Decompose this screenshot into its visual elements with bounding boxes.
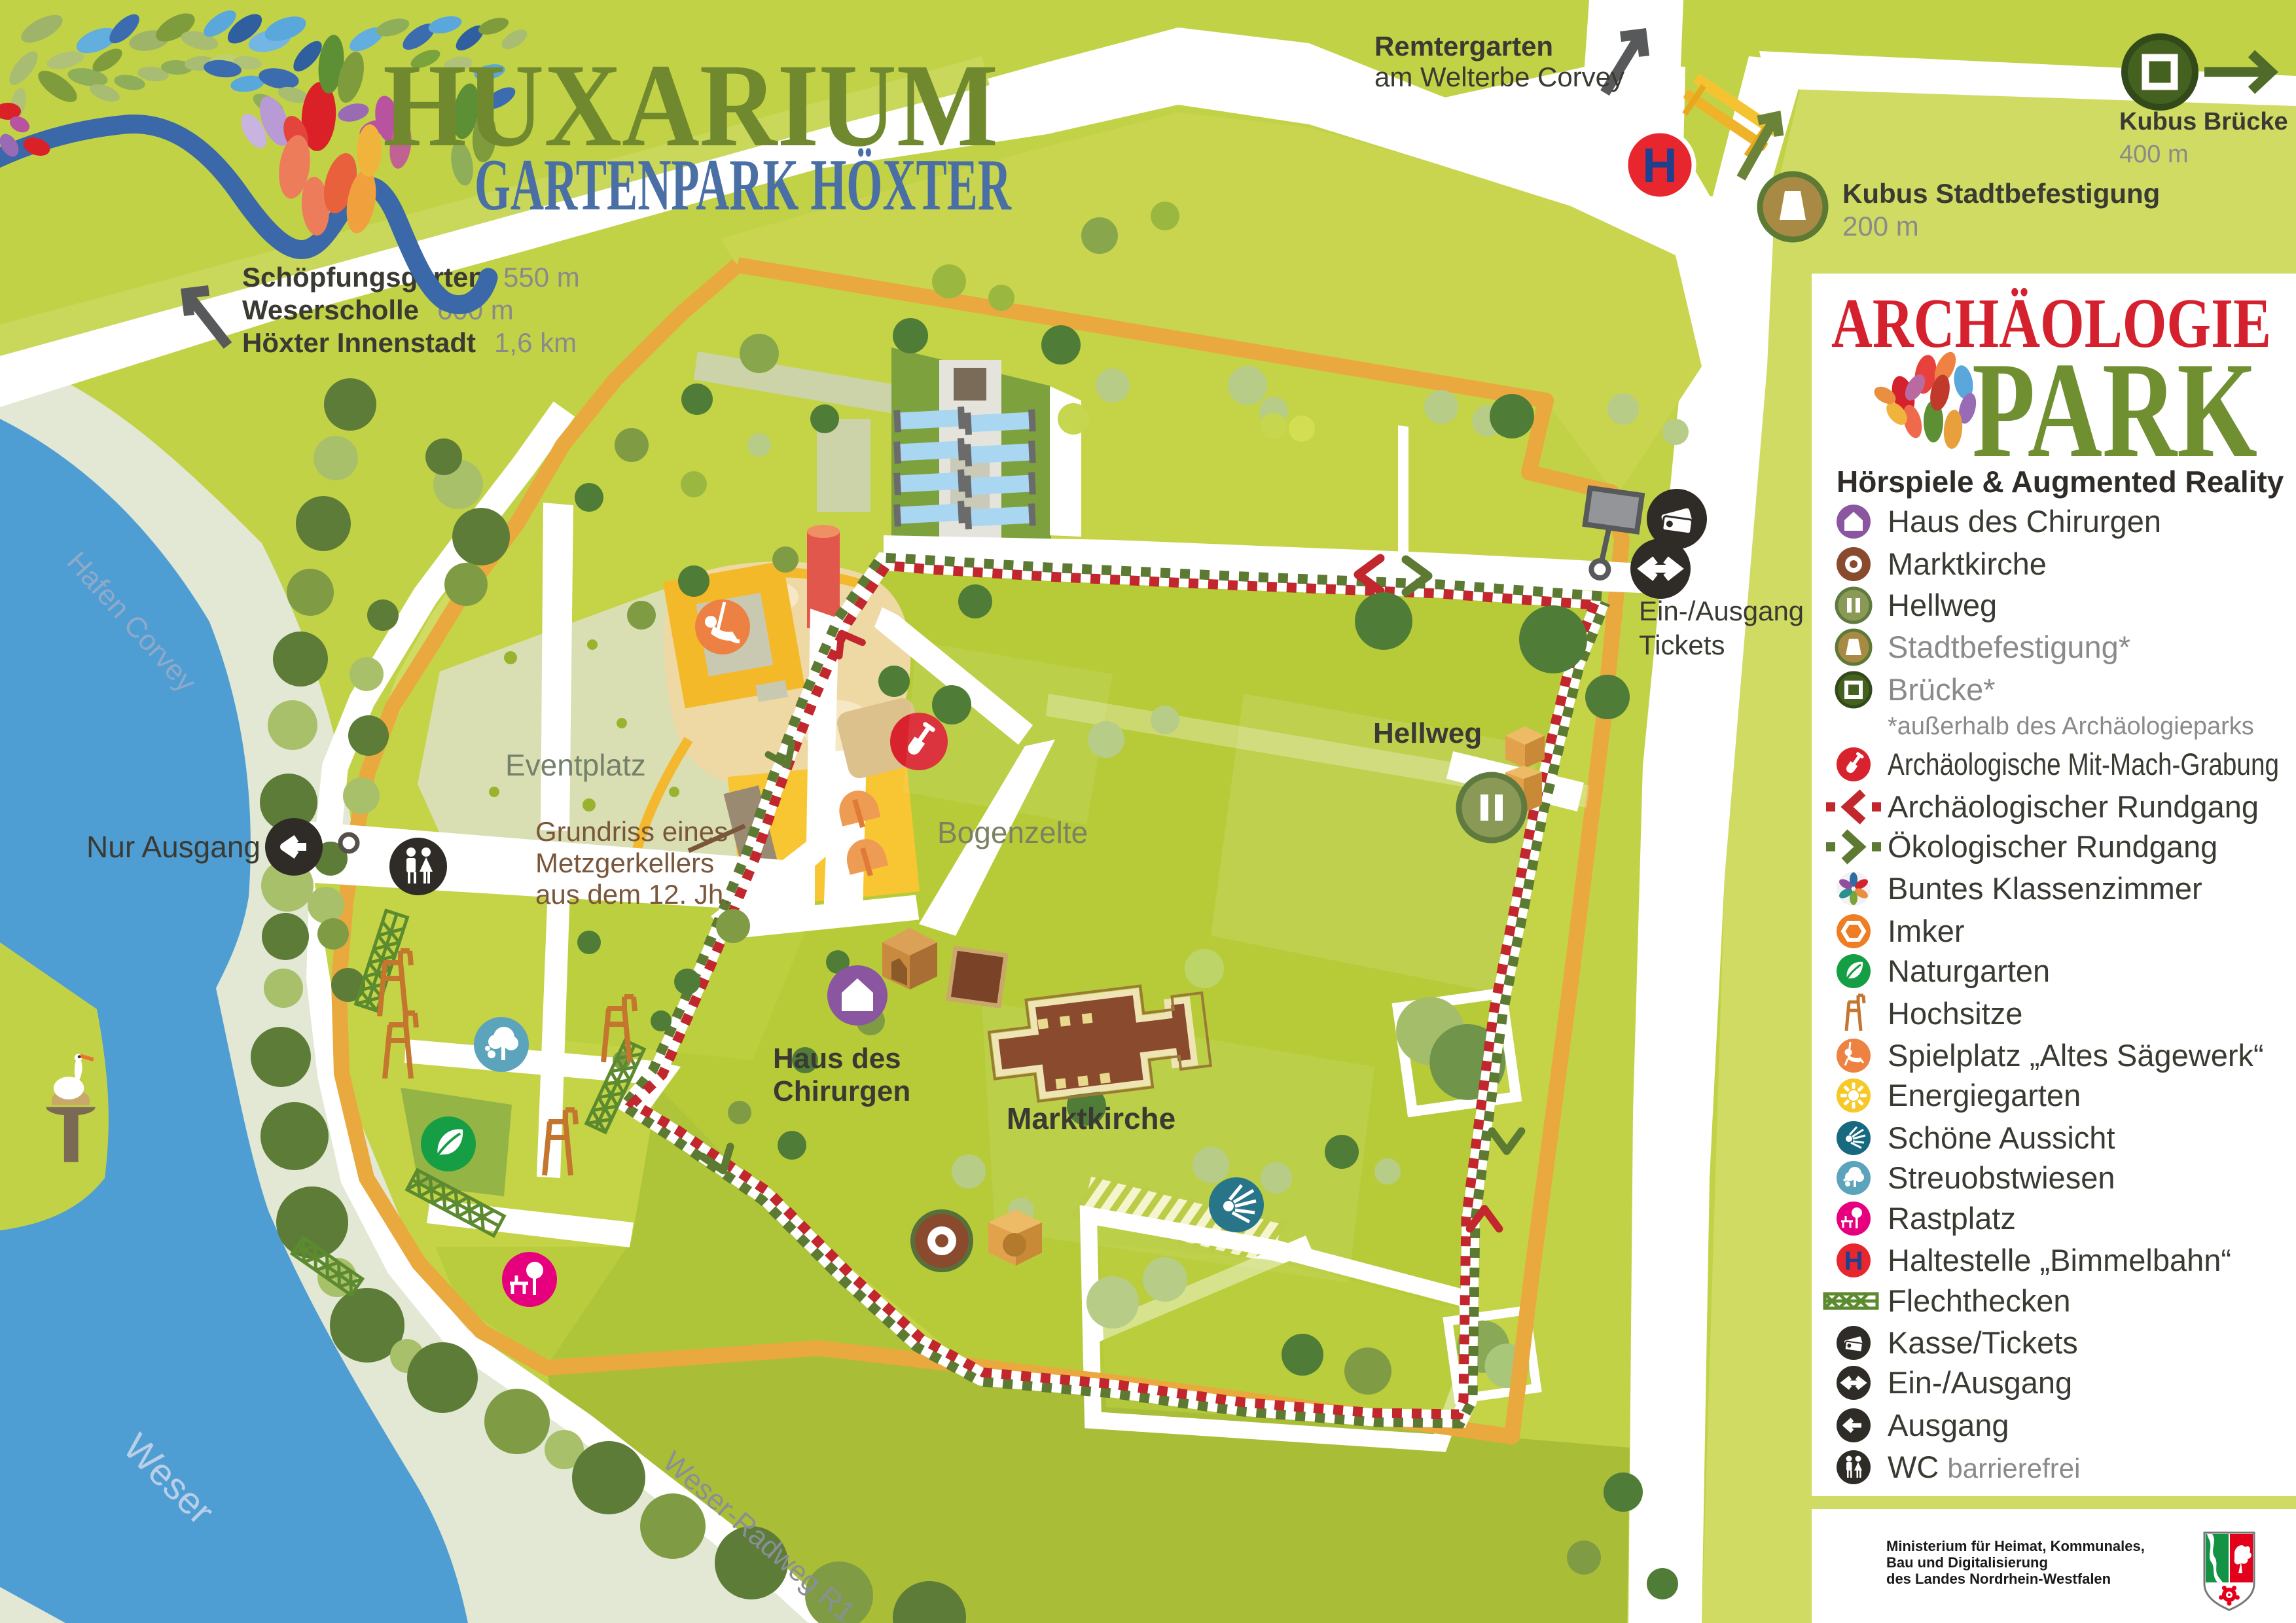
svg-text:Nur Ausgang: Nur Ausgang xyxy=(86,830,260,864)
svg-text:Hochsitze: Hochsitze xyxy=(1888,996,2022,1031)
svg-text:Haus des Chirurgen: Haus des Chirurgen xyxy=(1888,504,2161,539)
svg-text:Imker: Imker xyxy=(1888,914,1965,948)
svg-text:PARK: PARK xyxy=(1972,334,2257,486)
svg-text:*außerhalb des Archäologiepark: *außerhalb des Archäologieparks xyxy=(1888,713,2254,740)
svg-text:Hellweg: Hellweg xyxy=(1373,717,1482,749)
svg-text:Haus desChirurgen: Haus desChirurgen xyxy=(773,1043,910,1107)
svg-text:Archäologische Mit-Mach-Grabun: Archäologische Mit-Mach-Grabung xyxy=(1888,747,2279,781)
svg-text:Energiegarten: Energiegarten xyxy=(1888,1078,2081,1113)
svg-text:Hörspiele & Augmented Reality: Hörspiele & Augmented Reality xyxy=(1837,465,2284,499)
svg-text:Hellweg: Hellweg xyxy=(1888,588,1997,622)
svg-text:Grundriss einesMetzgerkellersa: Grundriss einesMetzgerkellersaus dem 12.… xyxy=(535,816,731,910)
svg-text:Haltestelle „Bimmelbahn“: Haltestelle „Bimmelbahn“ xyxy=(1888,1243,2231,1277)
svg-text:GARTENPARK HÖXTER: GARTENPARK HÖXTER xyxy=(475,145,1012,226)
svg-text:Stadtbefestigung*: Stadtbefestigung* xyxy=(1888,630,2130,664)
svg-text:Ein-/Ausgang: Ein-/Ausgang xyxy=(1888,1365,2072,1400)
svg-text:WC barrierefrei: WC barrierefrei xyxy=(1888,1450,2080,1484)
svg-text:Marktkirche: Marktkirche xyxy=(1888,546,2047,581)
svg-text:Schöne Aussicht: Schöne Aussicht xyxy=(1888,1120,2115,1155)
svg-text:Rastplatz: Rastplatz xyxy=(1888,1201,2016,1236)
svg-text:Flechthecken: Flechthecken xyxy=(1888,1283,2071,1318)
svg-text:Bogenzelte: Bogenzelte xyxy=(937,815,1088,849)
svg-text:Kasse/Tickets: Kasse/Tickets xyxy=(1888,1325,2078,1360)
svg-text:Streuobstwiesen: Streuobstwiesen xyxy=(1888,1160,2115,1195)
svg-text:H: H xyxy=(1642,138,1677,192)
svg-text:Buntes Klassenzimmer: Buntes Klassenzimmer xyxy=(1888,871,2202,906)
svg-text:Ökologischer Rundgang: Ökologischer Rundgang xyxy=(1888,829,2217,864)
svg-text:Eventplatz: Eventplatz xyxy=(505,748,646,782)
svg-text:H: H xyxy=(1844,1247,1863,1275)
svg-text:Archäologischer Rundgang: Archäologischer Rundgang xyxy=(1888,789,2259,824)
svg-text:Naturgarten: Naturgarten xyxy=(1888,954,2050,988)
svg-text:Brücke*: Brücke* xyxy=(1888,672,1996,707)
svg-text:Spielplatz „Altes Sägewerk“: Spielplatz „Altes Sägewerk“ xyxy=(1888,1038,2264,1073)
svg-text:Marktkirche: Marktkirche xyxy=(1007,1101,1175,1135)
svg-text:Ausgang: Ausgang xyxy=(1888,1408,2009,1442)
